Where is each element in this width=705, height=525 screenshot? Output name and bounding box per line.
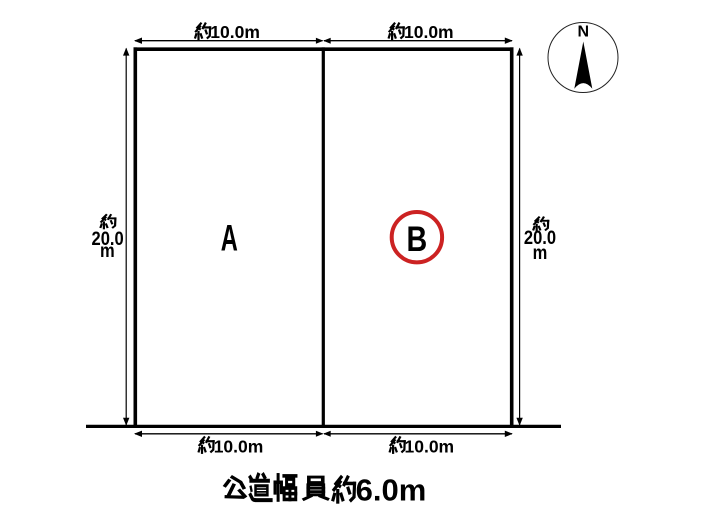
svg-text:A: A	[221, 217, 238, 259]
svg-text:N: N	[578, 24, 590, 41]
svg-text:6.0m: 6.0m	[356, 473, 427, 508]
svg-text:m: m	[533, 242, 548, 263]
svg-text:10.0m: 10.0m	[404, 22, 454, 42]
svg-text:10.0m: 10.0m	[405, 436, 455, 456]
svg-text:B: B	[406, 219, 427, 258]
svg-text:10.0m: 10.0m	[210, 22, 260, 42]
svg-text:10.0m: 10.0m	[214, 436, 264, 456]
svg-text:m: m	[100, 240, 115, 261]
